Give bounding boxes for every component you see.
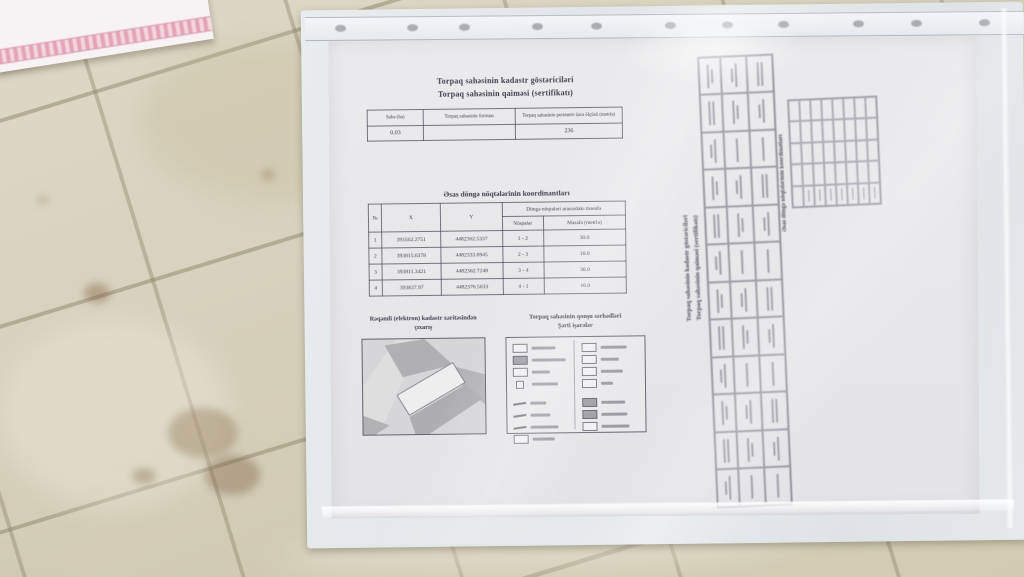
table-cell [865, 97, 877, 119]
table-cell [811, 120, 823, 142]
summary-table: Sahə (ha)Torpaq sahəsinin formasıTorpaq … [367, 107, 623, 142]
table-cell [720, 56, 748, 95]
text-mark [710, 144, 713, 158]
text-mark [772, 324, 775, 348]
punched-hole [722, 21, 733, 28]
dot-swatch-icon [516, 380, 524, 388]
text-mark [745, 405, 748, 419]
table-cell [821, 99, 833, 121]
text-mark [777, 436, 780, 460]
table-cell: 3 - 4 [503, 262, 544, 279]
box-swatch-icon [582, 343, 597, 352]
table-cell: 393562.2751 [381, 231, 440, 248]
table-cell [858, 183, 870, 205]
text-mark [713, 214, 716, 238]
text-mark [711, 176, 714, 200]
text-mark [717, 214, 720, 238]
text-mark [768, 329, 771, 343]
table-cell [835, 162, 847, 184]
text-mark [762, 99, 765, 123]
column-header: X [381, 203, 440, 232]
fill-swatch-icon [582, 398, 597, 407]
text-mark [718, 326, 721, 350]
text-mark [767, 212, 770, 236]
table-cell [708, 282, 732, 320]
text-mark [841, 189, 843, 201]
text-mark [708, 102, 711, 126]
text-mark [734, 63, 737, 87]
text-mark [808, 190, 810, 202]
text-mark [747, 438, 750, 462]
punched-hole [591, 23, 602, 30]
table-cell [735, 393, 763, 432]
text-mark [742, 325, 745, 349]
table-cell: 30.0 [544, 261, 626, 278]
page-title-line2: Torpaq sahəsinin qaiməsi (sertifikatı) [345, 87, 665, 100]
table-cell [701, 132, 725, 170]
map-title-line1: Rəqəmli (elektron) kadastr xəritəsindən [370, 314, 477, 322]
legend-item [579, 408, 641, 420]
stain-spot [84, 283, 110, 303]
table-cell [801, 142, 813, 164]
legend-label-text [532, 371, 550, 374]
table-cell [748, 92, 776, 131]
text-mark [737, 213, 740, 237]
text-mark [721, 294, 724, 308]
line-swatch-icon [513, 413, 526, 417]
punched-hole [459, 24, 470, 31]
legend-label-text [602, 425, 630, 428]
line-swatch-icon [513, 425, 526, 429]
box-swatch-icon [582, 367, 597, 376]
table-cell: 393811.3421 [382, 263, 441, 280]
table-cell [700, 94, 724, 132]
text-mark [766, 287, 769, 311]
text-mark [763, 217, 766, 231]
photo-scene: Torpaq sahəsinin kadastr göstəriciləri T… [0, 0, 1024, 577]
text-mark [749, 400, 752, 424]
legend-label-text [601, 358, 619, 361]
legend-left-column [509, 342, 572, 446]
legend-label-text [601, 401, 625, 404]
text-mark [762, 137, 765, 161]
table-cell [846, 162, 858, 184]
table-cell [727, 206, 755, 245]
table-cell [834, 141, 846, 163]
legend-item [511, 433, 573, 445]
table-cell [854, 97, 866, 119]
text-mark [746, 330, 749, 344]
table-cell [814, 185, 826, 207]
text-mark [736, 105, 739, 119]
table-cell: 4 - 1 [503, 278, 544, 295]
stain-spot [205, 455, 260, 495]
column-header: Y [440, 203, 502, 232]
legend-label-text [531, 426, 559, 429]
punched-hole [911, 20, 922, 27]
legend-divider [573, 340, 575, 429]
legend-right-column [578, 341, 641, 433]
table-cell [836, 184, 848, 206]
stain-spot [132, 468, 156, 484]
text-mark [760, 62, 763, 86]
table-cell [758, 317, 786, 356]
legend-item [510, 366, 572, 378]
box-swatch-icon [514, 435, 529, 444]
box-swatch-icon [582, 379, 597, 388]
fill-swatch-icon [513, 356, 528, 365]
table-cell [706, 244, 730, 282]
table-cell [799, 100, 811, 122]
table-cell [789, 121, 801, 143]
table-cell [705, 207, 729, 245]
table-row: 0.03236 [367, 123, 622, 141]
table-cell [866, 118, 878, 140]
table-cell [733, 355, 761, 394]
table-cell: 4482333.6945 [441, 247, 503, 264]
table-cell [843, 98, 855, 120]
legend-label-text [532, 347, 556, 350]
punched-hole [407, 24, 418, 31]
text-mark [719, 251, 722, 275]
table-cell [737, 430, 765, 469]
table-cell: 393837.97 [382, 279, 441, 296]
text-mark [725, 481, 728, 495]
table-cell [847, 183, 859, 205]
table-row: 4393837.974482376.56334 - 110.0 [369, 277, 626, 296]
table-cell [738, 468, 766, 507]
table-cell: 4 [369, 280, 382, 296]
table-cell [868, 161, 880, 183]
legend-item [510, 397, 572, 409]
text-mark [716, 289, 719, 313]
text-mark [707, 64, 710, 88]
table-cell [761, 392, 789, 431]
legend-item [510, 354, 572, 366]
punched-hole [979, 19, 990, 26]
stain-spot [38, 196, 48, 204]
punched-hole [532, 23, 543, 30]
legend-label-text [533, 438, 555, 441]
text-mark [863, 188, 865, 200]
table-cell [713, 394, 737, 432]
text-mark [744, 288, 747, 312]
table-cell: 1 [369, 232, 382, 248]
text-mark [727, 439, 730, 463]
text-mark [758, 104, 761, 118]
text-mark [770, 287, 773, 311]
legend-label-text [532, 383, 558, 386]
text-mark [776, 474, 779, 498]
box-swatch-icon [582, 355, 597, 364]
legend-label-text [601, 346, 627, 349]
table-cell [823, 141, 835, 163]
table-cell: 236 [515, 123, 622, 139]
legend-item [509, 342, 571, 354]
table-cell [856, 140, 868, 162]
table-cell [844, 119, 856, 141]
table-cell [764, 467, 792, 506]
table-cell: 4482376.5633 [441, 279, 503, 296]
legend-label-text [601, 370, 623, 373]
table-cell [423, 124, 515, 140]
text-mark [765, 174, 768, 198]
legend-item [579, 420, 641, 432]
text-mark [736, 180, 739, 194]
table-cell [723, 131, 751, 170]
text-mark [741, 293, 744, 307]
table-cell [790, 143, 802, 165]
box-swatch-icon [513, 344, 528, 353]
legend-label-text [601, 382, 613, 385]
text-mark [728, 476, 731, 500]
text-mark [725, 406, 728, 420]
table-cell [813, 163, 825, 185]
table-cell: 4482362.7248 [441, 263, 503, 280]
text-mark [874, 187, 876, 199]
text-mark [732, 100, 735, 124]
legend-title-line2: Şərti işarələr [558, 321, 593, 328]
table-cell [832, 98, 844, 120]
text-mark [723, 439, 726, 463]
legend-box [505, 335, 646, 434]
table-cell [869, 182, 881, 204]
table-cell: 2 [369, 248, 382, 264]
table-cell [791, 164, 803, 186]
table-cell [703, 169, 727, 207]
table-cell: 1 - 2 [502, 230, 543, 247]
table-cell [810, 99, 822, 121]
table-cell [754, 242, 782, 281]
punched-hole [778, 21, 789, 28]
text-mark [714, 139, 717, 163]
text-mark [716, 181, 719, 195]
table-cell [855, 118, 867, 140]
text-mark [711, 69, 714, 83]
table-cell [711, 357, 735, 395]
table-cell [803, 185, 815, 207]
legend-item [510, 409, 572, 421]
page-title-line1: Torpaq sahəsinin kadastr göstəriciləri [345, 74, 665, 87]
table-cell [822, 120, 834, 142]
table-cell [730, 281, 758, 320]
table-cell: 2 - 3 [502, 246, 543, 263]
legend-item [578, 341, 640, 353]
text-mark [773, 441, 776, 455]
punched-hole [665, 22, 676, 29]
punched-hole [335, 25, 346, 32]
table-cell [725, 168, 753, 207]
text-mark [819, 190, 821, 202]
text-mark [741, 250, 744, 274]
table-cell [763, 429, 791, 468]
legend-item [579, 396, 641, 408]
legend-label-text [530, 414, 550, 417]
text-mark [715, 256, 718, 270]
table-cell: 4482362.5337 [441, 231, 503, 248]
table-cell [824, 163, 836, 185]
text-mark [721, 401, 724, 425]
text-mark [746, 363, 749, 387]
table-cell [857, 161, 869, 183]
table-cell [722, 93, 750, 132]
text-mark [722, 326, 725, 350]
text-mark [750, 475, 753, 499]
table-cell [749, 130, 777, 169]
table-cell: 30.0 [543, 229, 625, 246]
table-cell: 10.0 [544, 277, 626, 294]
column-subheader: Nöqtələr [502, 216, 543, 231]
legend-title-line1: Torpaq sahəsinin qonşu sərhədləri [529, 313, 621, 321]
text-mark [830, 189, 832, 201]
map-title-line2: çıxarış [414, 323, 432, 330]
text-mark [771, 399, 774, 423]
text-mark [739, 175, 742, 199]
table-cell [788, 100, 800, 122]
legend-label-text [532, 358, 566, 361]
table-cell [751, 167, 779, 206]
table-cell [710, 319, 734, 357]
box-swatch-icon [513, 368, 528, 377]
page2-coordinates-grid [787, 96, 882, 209]
text-mark [772, 362, 775, 386]
cadastre-page1: Torpaq sahəsinin kadastr göstəriciləri T… [340, 54, 676, 518]
box-swatch-icon [582, 422, 597, 431]
map-section-title: Rəqəmli (elektron) kadastr xəritəsindən … [343, 314, 503, 333]
text-mark [767, 249, 770, 273]
text-mark [731, 68, 734, 82]
stain-spot [168, 408, 238, 458]
text-mark [852, 188, 854, 200]
cadastre-map-extract [361, 337, 486, 436]
table-cell [728, 243, 756, 282]
map-sketch [362, 338, 485, 434]
text-mark [741, 218, 744, 232]
page2-title-line1: Torpaq sahəsinin kadastr göstəriciləri [682, 215, 693, 322]
table-cell [759, 354, 787, 393]
column-header: Torpaq sahəsinin perimetri üzrə ölçüsü (… [515, 107, 622, 124]
text-mark [775, 399, 778, 423]
column-header: № [368, 204, 381, 232]
text-mark [736, 138, 739, 162]
table-cell: 10.0 [544, 245, 626, 262]
table-cell [756, 279, 784, 318]
table-cell [698, 57, 722, 95]
text-mark [751, 442, 754, 456]
table-cell [867, 139, 879, 161]
table-cell: 393815.6378 [382, 247, 441, 264]
legend-item [579, 365, 641, 377]
text-mark [756, 62, 759, 86]
text-mark [724, 364, 727, 388]
legend-label-text [530, 402, 546, 405]
table-cell [746, 55, 774, 94]
coords-section-title: Əsas döngə nöqtələrinin koordinantları [347, 187, 667, 200]
column-header-distance: Döngə nöqtələri arasındakı məsafə [502, 201, 626, 217]
line-swatch-icon [513, 401, 526, 405]
column-header: Sahə (ha) [367, 109, 423, 126]
punched-hole [853, 20, 864, 27]
table-cell [792, 186, 804, 208]
table-cell: 3 [369, 264, 382, 280]
column-header: Torpaq sahəsinin forması [423, 108, 515, 125]
text-mark [712, 101, 715, 125]
table-cell [715, 432, 739, 470]
legend-item [579, 353, 641, 365]
text-mark [761, 174, 764, 198]
table-cell [732, 318, 760, 357]
legend-section-title: Torpaq sahəsinin qonşu sərhədləri Şərti … [495, 312, 655, 331]
table-cell [802, 164, 814, 186]
column-subheader: Məsafə (metrlə) [543, 215, 625, 230]
page2-title-line2: Torpaq sahəsinin qaiməsi (sertifikatı) [692, 215, 703, 320]
fill-swatch-icon [582, 410, 597, 419]
legend-item [579, 377, 641, 389]
coordinates-table: №XYDöngə nöqtələri arasındakı məsafəNöqt… [368, 201, 627, 297]
table-cell: 0.03 [367, 125, 423, 141]
stain-spot [262, 170, 274, 180]
table-cell [825, 184, 837, 206]
legend-label-text [601, 413, 627, 416]
legend-item [510, 378, 572, 390]
table-cell [753, 204, 781, 243]
legend-item [510, 421, 572, 433]
text-mark [720, 369, 723, 383]
